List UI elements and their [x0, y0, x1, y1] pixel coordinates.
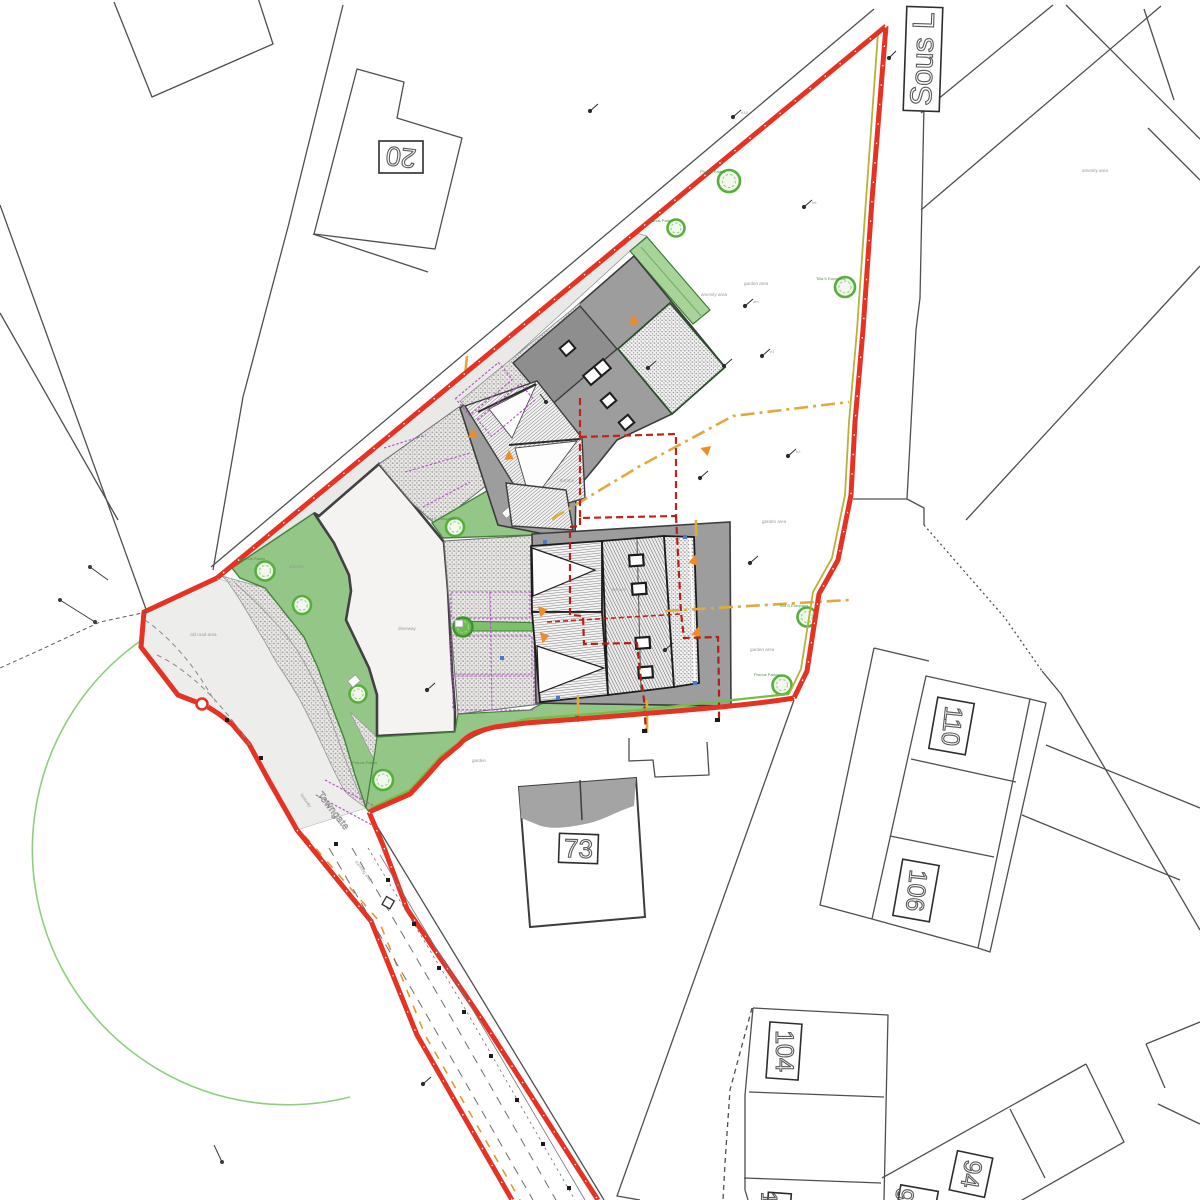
svg-text:e14: e14 — [741, 110, 748, 115]
svg-text:Tilia S Europaea: Tilia S Europaea — [426, 516, 456, 521]
svg-text:Prunus Padus: Prunus Padus — [754, 672, 779, 677]
svg-text:Prunus Padus: Prunus Padus — [352, 760, 377, 765]
svg-text:e1: e1 — [770, 349, 775, 354]
svg-text:b6: b6 — [812, 200, 817, 205]
svg-text:106: 106 — [900, 868, 932, 912]
svg-text:94: 94 — [955, 1158, 987, 1190]
svg-text:Prunus Padus: Prunus Padus — [700, 169, 725, 174]
svg-text:Sous L: Sous L — [905, 12, 941, 107]
svg-text:20: 20 — [384, 140, 417, 173]
svg-text:garden area: garden area — [744, 281, 769, 286]
svg-text:110: 110 — [935, 705, 967, 748]
svg-text:garden area: garden area — [762, 519, 787, 524]
svg-text:terrace: terrace — [560, 478, 575, 483]
svg-text:old road area: old road area — [190, 632, 217, 637]
svg-text:driveway: driveway — [398, 626, 417, 631]
svg-text:Prunus Padus: Prunus Padus — [648, 218, 673, 223]
svg-text:73: 73 — [564, 833, 594, 864]
svg-text:garden: garden — [472, 758, 487, 763]
svg-text:b2: b2 — [796, 449, 801, 454]
svg-text:garden area: garden area — [750, 647, 775, 652]
svg-text:Prunus Padus: Prunus Padus — [240, 556, 265, 561]
svg-text:Tilia S Europaea: Tilia S Europaea — [779, 603, 809, 608]
svg-text:1: 1 — [757, 1192, 782, 1200]
svg-text:terrace: terrace — [612, 587, 627, 592]
svg-text:amenity area: amenity area — [1082, 168, 1109, 173]
svg-text:Tilia S Europaea: Tilia S Europaea — [816, 276, 846, 281]
svg-text:amenity: amenity — [289, 564, 306, 569]
svg-text:104: 104 — [770, 1030, 798, 1072]
svg-text:am: am — [753, 299, 759, 304]
svg-text:amenity area: amenity area — [701, 292, 728, 297]
